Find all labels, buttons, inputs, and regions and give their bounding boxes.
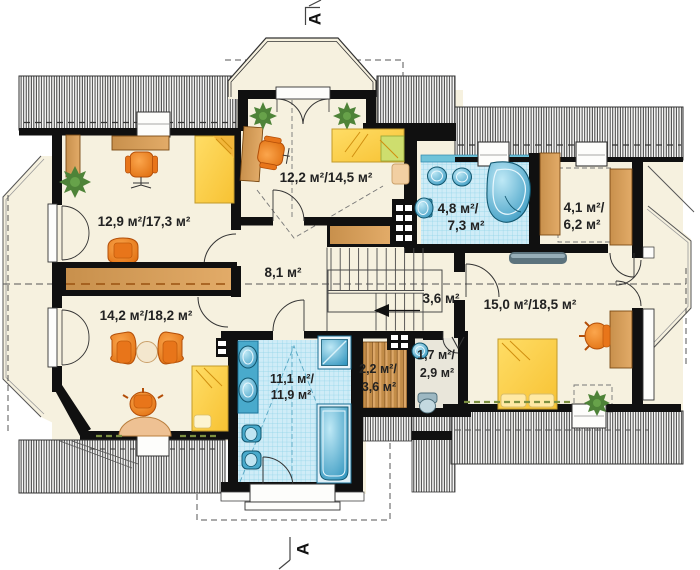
svg-text:11,9 м²: 11,9 м² [271,388,312,402]
svg-text:3,6 м²: 3,6 м² [423,291,461,306]
svg-text:12,2 м²/14,5 м²: 12,2 м²/14,5 м² [280,170,373,185]
svg-text:4,1 м²/: 4,1 м²/ [564,200,605,215]
svg-text:15,0 м²/18,5 м²: 15,0 м²/18,5 м² [484,297,577,312]
svg-text:7,3 м²: 7,3 м² [448,218,486,233]
svg-text:11,1 м²/: 11,1 м²/ [270,372,315,386]
svg-text:8,1 м²: 8,1 м² [265,265,303,280]
svg-text:4,8 м²/: 4,8 м²/ [438,201,479,216]
svg-text:12,9 м²/17,3 м²: 12,9 м²/17,3 м² [98,214,191,229]
svg-text:2,2 м²/: 2,2 м²/ [359,362,397,376]
svg-text:14,2 м²/18,2 м²: 14,2 м²/18,2 м² [100,308,193,323]
svg-text:A: A [294,543,313,555]
svg-text:1,7 м²/: 1,7 м²/ [417,348,455,362]
svg-text:2,9 м²: 2,9 м² [420,366,454,380]
svg-text:3,6 м²: 3,6 м² [362,380,396,394]
svg-text:A: A [306,13,325,25]
svg-text:6,2 м²: 6,2 м² [564,217,602,232]
